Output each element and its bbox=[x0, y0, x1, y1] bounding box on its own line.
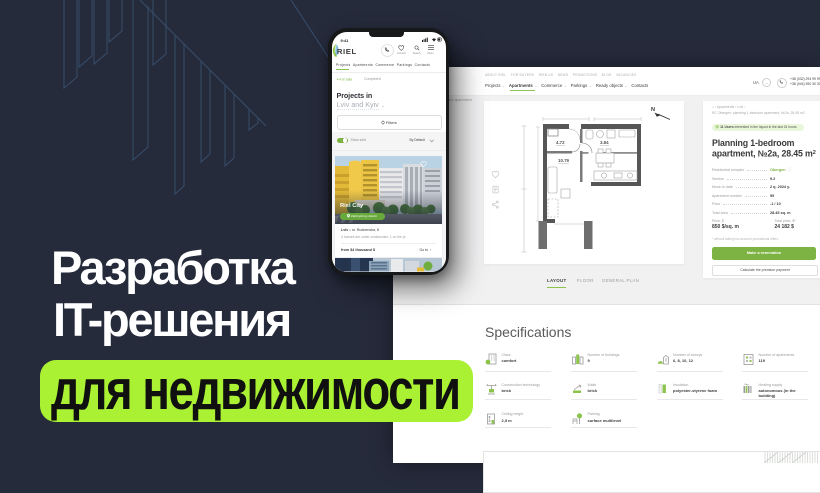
svg-text:3.84: 3.84 bbox=[600, 140, 609, 145]
svg-text:4.72: 4.72 bbox=[556, 140, 565, 145]
svg-text:10.79: 10.79 bbox=[558, 158, 570, 163]
